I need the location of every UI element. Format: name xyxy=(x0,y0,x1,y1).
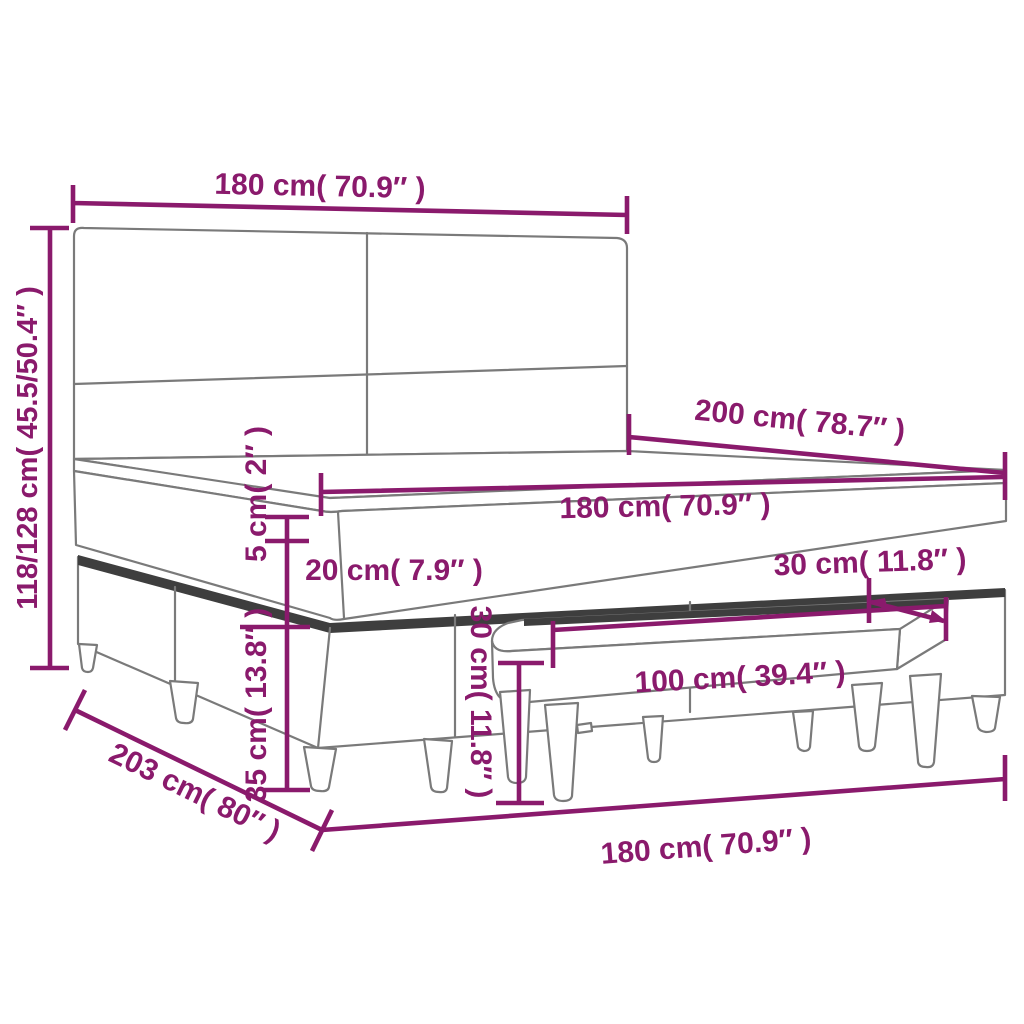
bench-front-leg-4 xyxy=(910,674,941,767)
dim-label-headboard-width: 180 cm( 70.9″ ) xyxy=(214,168,426,205)
bed-leg-2 xyxy=(170,681,198,723)
dim-headboard-width: 180 cm( 70.9″ ) xyxy=(73,168,627,234)
dim-frame-width: 180 cm( 70.9″ ) xyxy=(322,755,1005,871)
bench-front-leg-1 xyxy=(500,690,530,783)
dim-label-frame-width: 180 cm( 70.9″ ) xyxy=(600,822,813,871)
bed-leg-4 xyxy=(424,739,452,792)
bench-back-leg-1 xyxy=(643,716,663,762)
dim-label-base-height: 35 cm( 13.8″ ) xyxy=(240,608,273,802)
bench-front-leg-2 xyxy=(545,703,578,801)
bench-fabric-tag xyxy=(577,723,592,733)
dim-label-mattress-width: 180 cm( 70.9″ ) xyxy=(559,488,771,525)
dim-label-bench-depth: 30 cm( 11.8″ ) xyxy=(773,543,967,583)
dim-label-overall-height: 118/128 cm( 45.5/50.4″ ) xyxy=(12,286,44,609)
bed-leg-3 xyxy=(304,747,336,791)
dim-overall-height: 118/128 cm( 45.5/50.4″ ) xyxy=(12,228,69,668)
bed-leg-5 xyxy=(972,696,1000,732)
bed-leg-1 xyxy=(79,644,97,672)
dim-label-topper-thickness: 5 cm( 2″ ) xyxy=(240,426,273,562)
bench-back-leg-2 xyxy=(793,711,813,751)
bed-dimension-diagram: 180 cm( 70.9″ ) 118/128 cm( 45.5/50.4″ )… xyxy=(0,0,1024,1024)
dim-label-mattress-thickness: 20 cm( 7.9″ ) xyxy=(305,554,483,587)
diagram-canvas: 180 cm( 70.9″ ) 118/128 cm( 45.5/50.4″ )… xyxy=(0,0,1024,1024)
headboard-outline xyxy=(74,228,627,459)
dim-label-bench-height: 30 cm( 11.8″ ) xyxy=(464,606,497,799)
bench-front-leg-3 xyxy=(852,683,882,751)
dim-line xyxy=(322,755,1005,830)
dim-label-bed-length: 200 cm( 78.7″ ) xyxy=(693,394,906,447)
